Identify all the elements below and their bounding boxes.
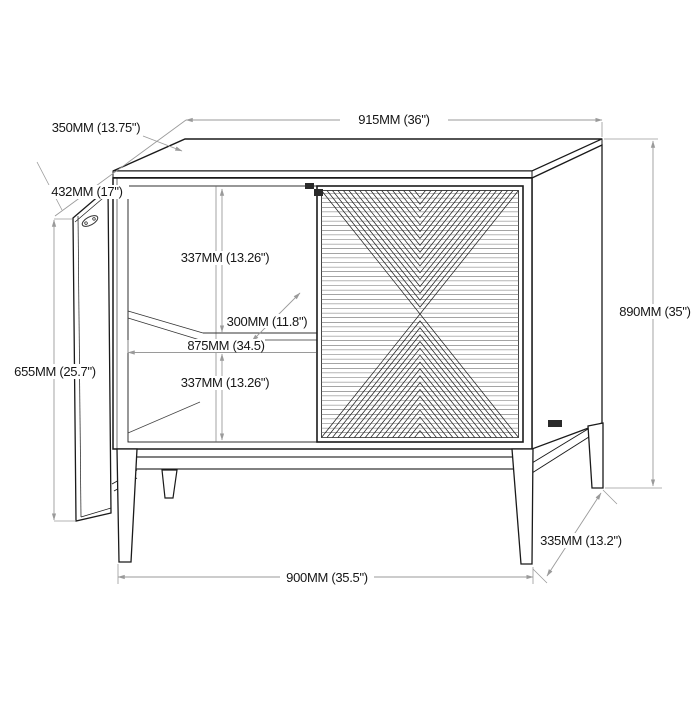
dim-base-depth: 335MM (13.2") (533, 490, 625, 583)
cabinet-line-drawing: 432MM (17") 915MM (36") 350MM (13.75") 6… (0, 0, 700, 700)
door-hinge-plate-icon (314, 189, 323, 196)
dim-top-width: 915MM (36") (186, 112, 602, 137)
cabinet-side-panel (532, 145, 602, 449)
dim-label-upper-compartment: 337MM (13.26") (181, 250, 270, 265)
top-surface (113, 139, 602, 171)
dim-label-top-width: 915MM (36") (358, 112, 429, 127)
furniture-dimension-diagram: 432MM (17") 915MM (36") 350MM (13.75") 6… (0, 0, 700, 700)
open-door-panel (73, 188, 111, 521)
right-door (305, 183, 523, 442)
front-left-leg (117, 449, 137, 562)
back-right-leg (588, 423, 603, 488)
dim-base-width: 900MM (35.5") (118, 564, 533, 585)
dim-label-base-width: 900MM (35.5") (286, 570, 368, 585)
back-stretcher-end (548, 420, 562, 427)
back-left-leg (162, 470, 177, 498)
top-front-fascia (113, 171, 532, 178)
dim-label-interior-width: 875MM (34.5) (187, 338, 264, 353)
door-hinge-top-icon (305, 183, 314, 189)
dim-label-top-depth: 350MM (13.75") (52, 120, 141, 135)
cabinet-top (113, 139, 602, 178)
ext-top-base-depth (603, 490, 617, 504)
right-side-panel (532, 145, 602, 449)
dim-label-base-depth: 335MM (13.2") (540, 533, 622, 548)
front-right-leg (512, 449, 533, 564)
dim-label-lower-compartment: 337MM (13.26") (181, 375, 270, 390)
dim-label-door-width: 432MM (17") (51, 184, 122, 199)
ext-bottom-base-depth (533, 569, 547, 583)
front-stretcher (135, 457, 514, 469)
dim-label-overall-height: 890MM (35") (619, 304, 690, 319)
dim-label-shelf-depth: 300MM (11.8") (227, 314, 308, 329)
dim-top-depth: 350MM (13.75") (48, 120, 182, 151)
open-left-door (73, 188, 111, 521)
dim-label-door-height: 655MM (25.7") (14, 364, 96, 379)
dim-overall-height: 890MM (35") (604, 139, 698, 488)
